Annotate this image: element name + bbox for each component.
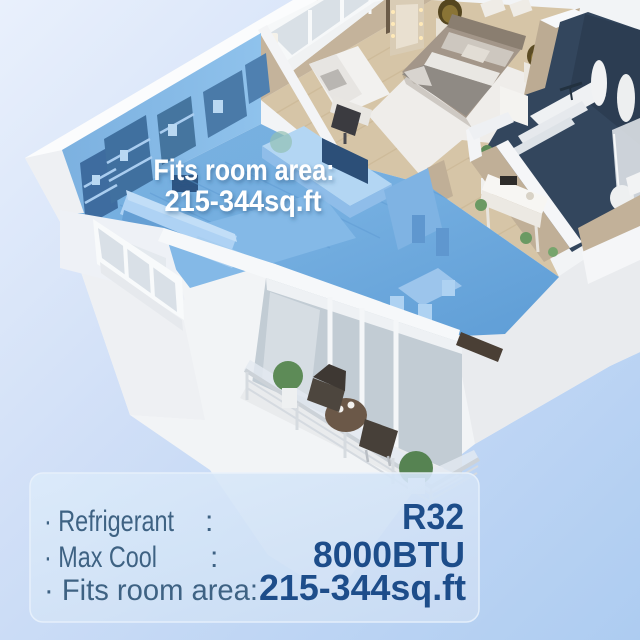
svg-text:Fits room area:: Fits room area: [154, 154, 335, 187]
svg-text::: : [205, 505, 213, 538]
svg-text:· Max Cool: · Max Cool [44, 541, 157, 574]
svg-text::: : [210, 541, 218, 574]
svg-text:R32: R32 [402, 496, 464, 537]
svg-text:215-344sq.ft: 215-344sq.ft [165, 185, 322, 218]
svg-text:215-344sq.ft: 215-344sq.ft [259, 567, 466, 608]
svg-text:· Refrigerant: · Refrigerant [44, 505, 175, 538]
svg-text:· Fits room area:: · Fits room area: [44, 574, 258, 607]
